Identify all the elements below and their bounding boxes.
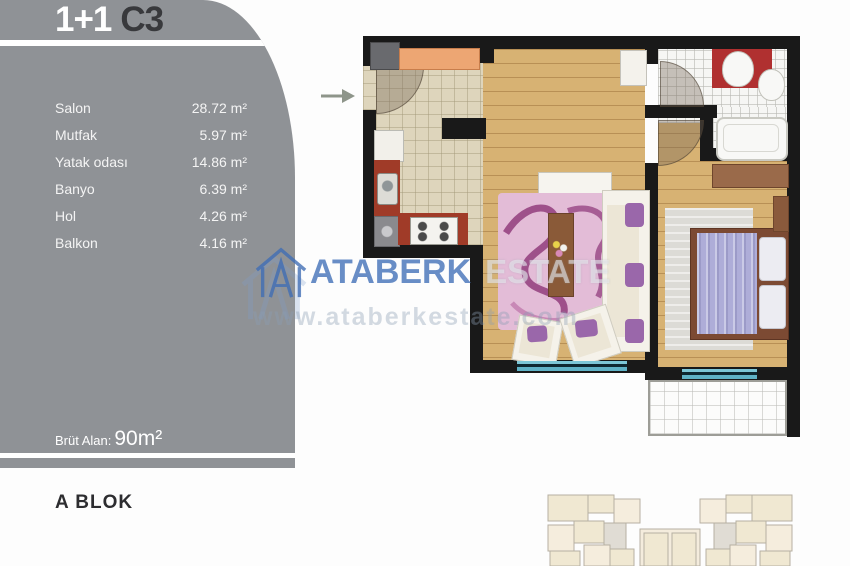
- washer: [374, 216, 400, 247]
- gross-area-value: 90m²: [114, 427, 162, 451]
- room-area-value: 5.97 m²: [200, 122, 247, 149]
- hall-cabinet: [620, 50, 647, 86]
- plan-type-label: 1+1: [55, 0, 111, 39]
- wall-kitchen-stub: [442, 118, 486, 139]
- balcony-floor: [648, 380, 787, 436]
- room-area-value: 14.86 m²: [192, 149, 247, 176]
- block-label: A BLOK: [55, 492, 133, 514]
- divider-stripe-bottom: [0, 453, 295, 458]
- info-sidebar: 1+1C3 Salon28.72 m²Mutfak5.97 m²Yatak od…: [0, 0, 295, 468]
- room-area-value: 4.16 m²: [200, 230, 247, 257]
- bathtub: [716, 117, 788, 161]
- room-area-row: Hol4.26 m²: [55, 203, 247, 230]
- room-area-row: Banyo6.39 m²: [55, 176, 247, 203]
- entrance-arrow-icon: [318, 87, 356, 105]
- room-area-value: 4.26 m²: [200, 203, 247, 230]
- room-label: Balkon: [55, 230, 98, 257]
- room-area-value: 28.72 m²: [192, 95, 247, 122]
- wall-living-left: [470, 245, 483, 373]
- room-area-row: Salon28.72 m²: [55, 95, 247, 122]
- room-area-value: 6.39 m²: [200, 176, 247, 203]
- armchair-cushion: [575, 319, 599, 338]
- room-label: Salon: [55, 95, 91, 122]
- shaft-box: [370, 42, 400, 70]
- divider-stripe-top: [0, 40, 295, 46]
- bed-pillow: [759, 285, 786, 329]
- room-list: Salon28.72 m²Mutfak5.97 m²Yatak odası14.…: [55, 95, 247, 257]
- bedroom-window: [682, 369, 757, 379]
- room-area-row: Yatak odası14.86 m²: [55, 149, 247, 176]
- sofa-cushion: [625, 203, 644, 227]
- armchair: [511, 314, 563, 367]
- gross-area: Brüt Alan: 90m²: [55, 427, 162, 451]
- unit-code-label: C3: [120, 0, 163, 39]
- building-key-plan: [540, 489, 800, 566]
- stove: [410, 217, 458, 245]
- kitchen-sink: [377, 173, 398, 205]
- living-room-window: [517, 361, 627, 371]
- bed: [690, 228, 789, 340]
- room-label: Yatak odası: [55, 149, 128, 176]
- kitchen-counter-top: [399, 48, 480, 70]
- floor-plan-image: [360, 33, 802, 438]
- dresser: [712, 164, 789, 188]
- page: 1+1C3 Salon28.72 m²Mutfak5.97 m²Yatak od…: [0, 0, 850, 566]
- bed-pillow: [759, 237, 786, 281]
- room-label: Banyo: [55, 176, 95, 203]
- plan-title: 1+1C3: [55, 0, 163, 40]
- room-area-row: Mutfak5.97 m²: [55, 122, 247, 149]
- bed-blanket: [697, 233, 757, 334]
- armchair-cushion: [527, 325, 548, 342]
- room-label: Hol: [55, 203, 76, 230]
- bathtub-inner: [723, 124, 779, 152]
- sofa-cushion: [625, 319, 644, 343]
- bedroom-bench: [773, 196, 789, 232]
- room-label: Mutfak: [55, 122, 97, 149]
- fridge: [374, 130, 404, 162]
- gross-area-label: Brüt Alan:: [55, 433, 111, 448]
- table-decor: [551, 238, 569, 260]
- entry-door-opening: [363, 66, 376, 110]
- room-area-row: Balkon4.16 m²: [55, 230, 247, 257]
- sofa-cushion: [625, 263, 644, 287]
- toilet: [758, 69, 785, 101]
- bath-sink: [722, 51, 754, 87]
